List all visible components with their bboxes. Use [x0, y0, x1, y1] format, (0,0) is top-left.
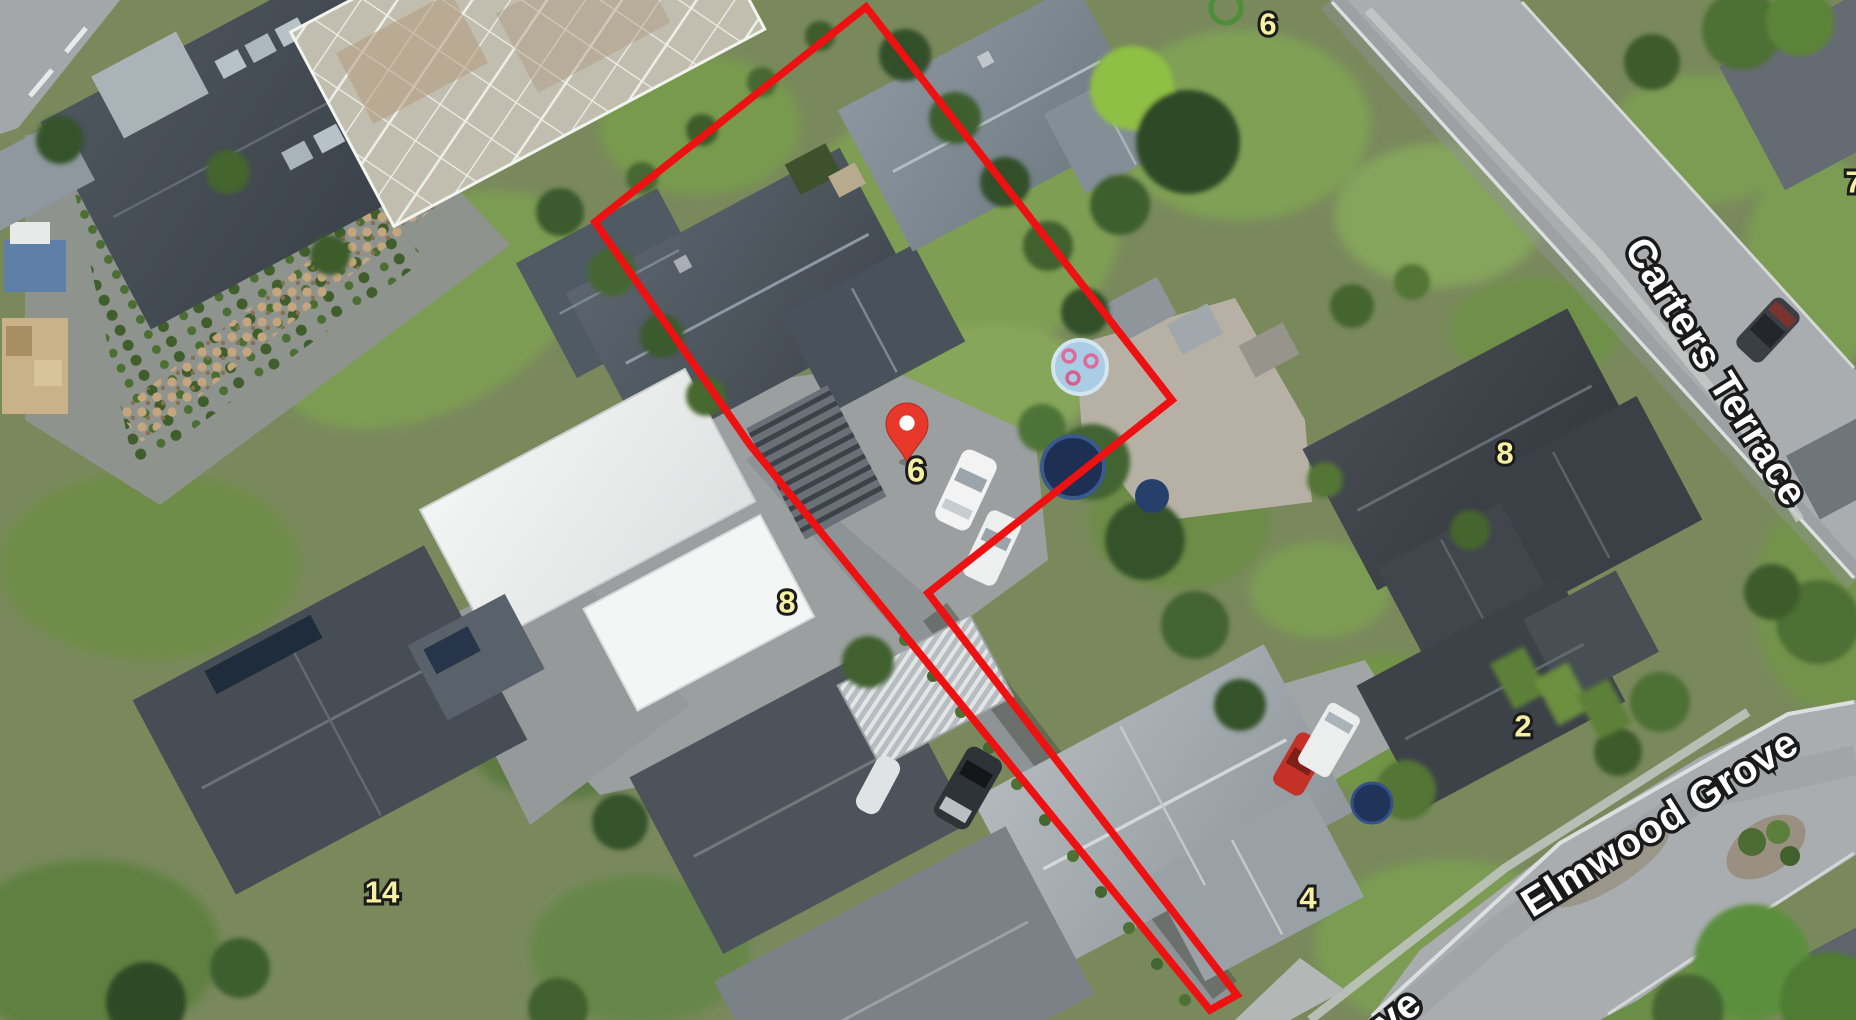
- blue-tarp: [4, 240, 66, 292]
- marker-house-number: 6: [907, 452, 925, 489]
- trampoline-pool: [1042, 436, 1104, 498]
- small-pool: [1135, 479, 1169, 513]
- house-number-2: 2: [1514, 709, 1531, 744]
- paddling-pool: [1053, 340, 1107, 394]
- house-number-7: 7: [1845, 165, 1856, 200]
- house-number-4: 4: [1299, 881, 1317, 916]
- house-number-8-carters: 8: [1496, 436, 1513, 471]
- backyard-pool-2: [1352, 783, 1392, 823]
- house-number-8-left: 8: [778, 585, 795, 620]
- house-number-6: 6: [1259, 7, 1276, 42]
- house-number-14: 14: [365, 875, 400, 910]
- map-canvas[interactable]: Carters Terrace Elmwood Grove ve 6 6 7 8…: [0, 0, 1856, 1020]
